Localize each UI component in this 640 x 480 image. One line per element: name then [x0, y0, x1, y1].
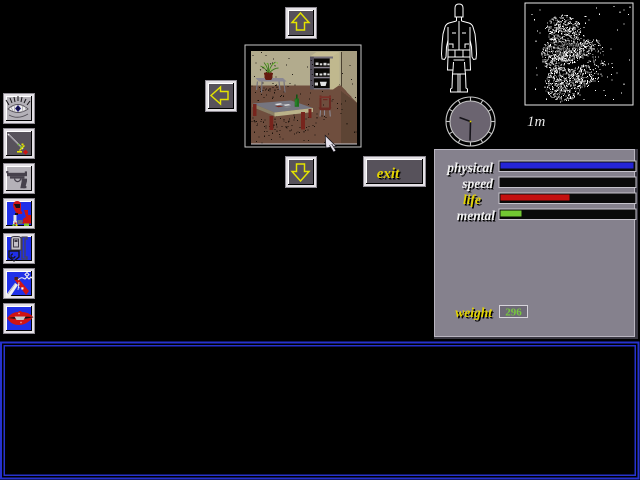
svg-text:1m: 1m: [527, 114, 546, 130]
svg-text:weight: weight: [455, 305, 493, 320]
svg-text:exit: exit: [377, 166, 400, 182]
svg-text:296: 296: [505, 307, 522, 319]
svg-text:mental: mental: [457, 208, 496, 223]
svg-text:life: life: [463, 192, 481, 207]
svg-text:speed: speed: [461, 176, 493, 191]
svg-text:physical: physical: [446, 160, 493, 175]
